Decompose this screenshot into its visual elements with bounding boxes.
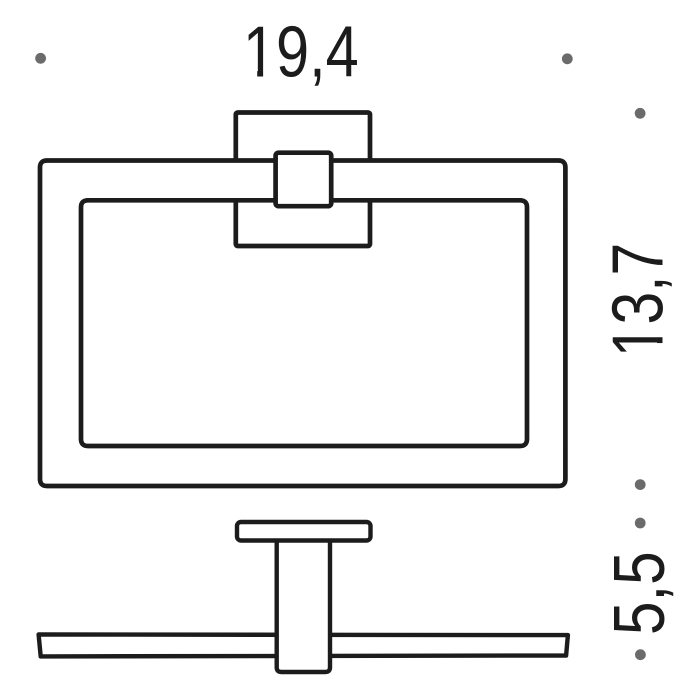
svg-text:13,7: 13,7 — [597, 243, 678, 357]
svg-text:5,5: 5,5 — [600, 551, 681, 635]
svg-text:19,4: 19,4 — [243, 12, 359, 93]
